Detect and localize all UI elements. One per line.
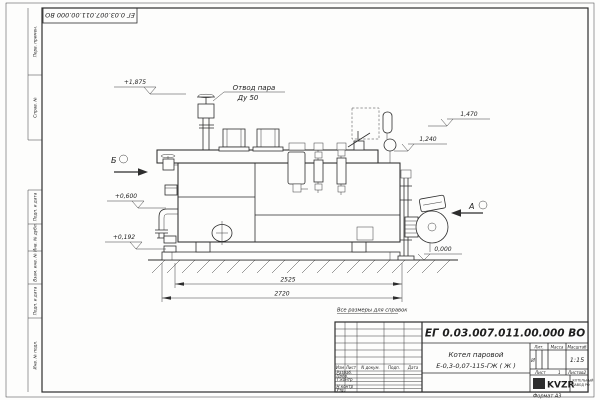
elev-mark-0192 [105,242,166,249]
top-hatches [219,129,283,151]
siphon-loop [384,139,396,151]
left-fitting-mid [165,185,177,195]
view-a-arrowhead [451,209,461,217]
gauge-1-bottom-cock [315,184,322,190]
water-gauge-2 [337,158,346,184]
product-name-line2: Е-0,3-0,07-115-ГЖ ( Ж ) [436,362,516,370]
product-name-line1: Котел паровой [449,351,504,359]
right-pipe-base [398,256,414,260]
view-b-arrowhead [138,168,148,176]
hatch-1 [223,129,245,147]
logo-caption-line2: ЗАВОД РФ [573,383,590,387]
feed-elbow-outer [159,209,178,230]
ground-hatch-lines [152,260,450,273]
dim-arrow-2525-left [175,282,184,286]
flipped-doc-number: ЕГ 0.03.007.011.00.000 ВО [45,11,135,19]
gauge-2-top-cock [338,150,345,156]
lit-value: И [531,358,535,364]
elev-label-1470: 1,470 [460,111,477,118]
reference-note: Все размеры для справок [337,308,408,314]
margin-stamp-column: Перв. примен. Справ. № Подп. и дата Инв.… [28,8,42,392]
dim-arrow-2720-right [393,296,402,300]
hatch-1-flange [219,147,249,151]
gauge-2-bottom-cock [338,186,345,192]
role-utv: Утв. [337,387,345,392]
left-fittings [155,154,178,252]
title-doc-number: ЕГ 0.03.007.011.00.000 ВО [425,328,585,340]
elev-mark-1240 [394,144,447,151]
boiler-general-view-drawing: Перв. примен. Справ. № Подп. и дата Инв.… [0,0,600,400]
logo-caption-line1: КОТЕЛЬНЫЙ [573,378,595,383]
right-pipe-cap [401,170,411,178]
view-a-sheet-ref-circle [479,201,487,209]
steam-valve-stem [197,97,215,104]
col-data: Дата [407,365,419,370]
elev-label-1875: +1,875 [124,79,146,86]
drain-fitting-1 [164,236,176,243]
margin-label-inv-dubl: Инв. № дубл. [33,223,38,252]
level-column-drain [293,184,301,192]
dim-arrow-2720-left [162,296,171,300]
dim-label-2720: 2720 [274,291,289,298]
left-valve-body [163,159,174,170]
view-b-label: Б [111,156,117,165]
dim-arrow-2525-right [393,282,402,286]
view-a-label: А [468,202,474,211]
scale-label: Масштаб [567,345,587,350]
gauge-2-hanger [337,143,346,150]
format-label: Формат А3 [533,394,561,400]
margin-label-sprav-no: Справ. № [33,97,38,118]
mass-label: Масса [551,345,564,350]
feed-elbow-inner [164,214,178,230]
margin-label-inv-podl: Инв. № подл. [33,341,38,370]
drawing-sheet: Перв. примен. Справ. № Подп. и дата Инв.… [0,0,600,400]
hatch-2-flange [253,147,283,151]
flipped-doc-number-box: ЕГ 0.03.007.011.00.000 ВО [43,8,137,23]
reference-note-text: Все размеры для справок [337,308,408,314]
elev-mark-1875 [114,87,186,94]
elev-label-0000: 0,000 [434,246,451,253]
level-column [288,152,305,184]
margin-label-podp-data-1: Подп. и дата [33,192,38,221]
sheets-value: 2 [584,370,587,375]
col-podp: Подп. [388,365,400,370]
view-b-sheet-ref-circle [120,155,128,163]
steam-outlet-label-line1: Отвод пара [233,84,276,92]
steam-pipe [199,118,214,150]
burner-top-box [419,195,446,212]
support-leg-right [352,242,366,252]
margin-label-vzam-inv: Взам. инв. № [33,253,38,282]
elev-label-1240: 1,240 [419,136,436,143]
base-skid [162,252,400,260]
margin-label-podp-data-2: Подп. и дата [33,286,38,315]
elev-label-0192: +0,192 [113,234,135,241]
phantom-outline-box [352,108,379,139]
hatch-2 [257,129,279,147]
level-column-nozzle [289,143,305,150]
kvzr-logo-mark [533,378,545,389]
burner-volute [416,211,448,243]
boiler-body [157,150,400,245]
gauge-1-hanger [314,143,323,150]
sheets-label: Листов [567,370,584,375]
elev-label-0600: +0,600 [115,193,137,200]
pressure-gauge [383,112,392,133]
steam-outlet-label-line2: Ду 50 [237,94,259,102]
gauge-1-top-cock [315,152,322,158]
col-ndocum: N докум. [361,365,380,370]
margin-label-perv-primen: Перв. примен. [33,26,38,57]
scale-value: 1:15 [570,356,585,364]
sheet-label: Лист [534,370,546,375]
boiler-view: Отвод пара Ду 50 [105,79,490,302]
role-tkontr: Т.контр [337,377,354,382]
elev-mark-0000 [418,254,462,260]
water-gauge-1 [314,160,323,182]
lit-label: Лит. [533,345,543,350]
sheet-value: 1 [558,370,561,375]
title-block: Изм Лист N докум. Подп. Дата Разраб. Про… [335,322,594,392]
kvzr-logo-text: KVZR [547,381,574,391]
dim-label-2525: 2525 [280,277,295,284]
elev-mark-1470 [428,119,490,126]
support-leg-left [196,242,210,252]
elev-mark-0600 [107,201,166,208]
steam-valve-body [198,104,214,118]
